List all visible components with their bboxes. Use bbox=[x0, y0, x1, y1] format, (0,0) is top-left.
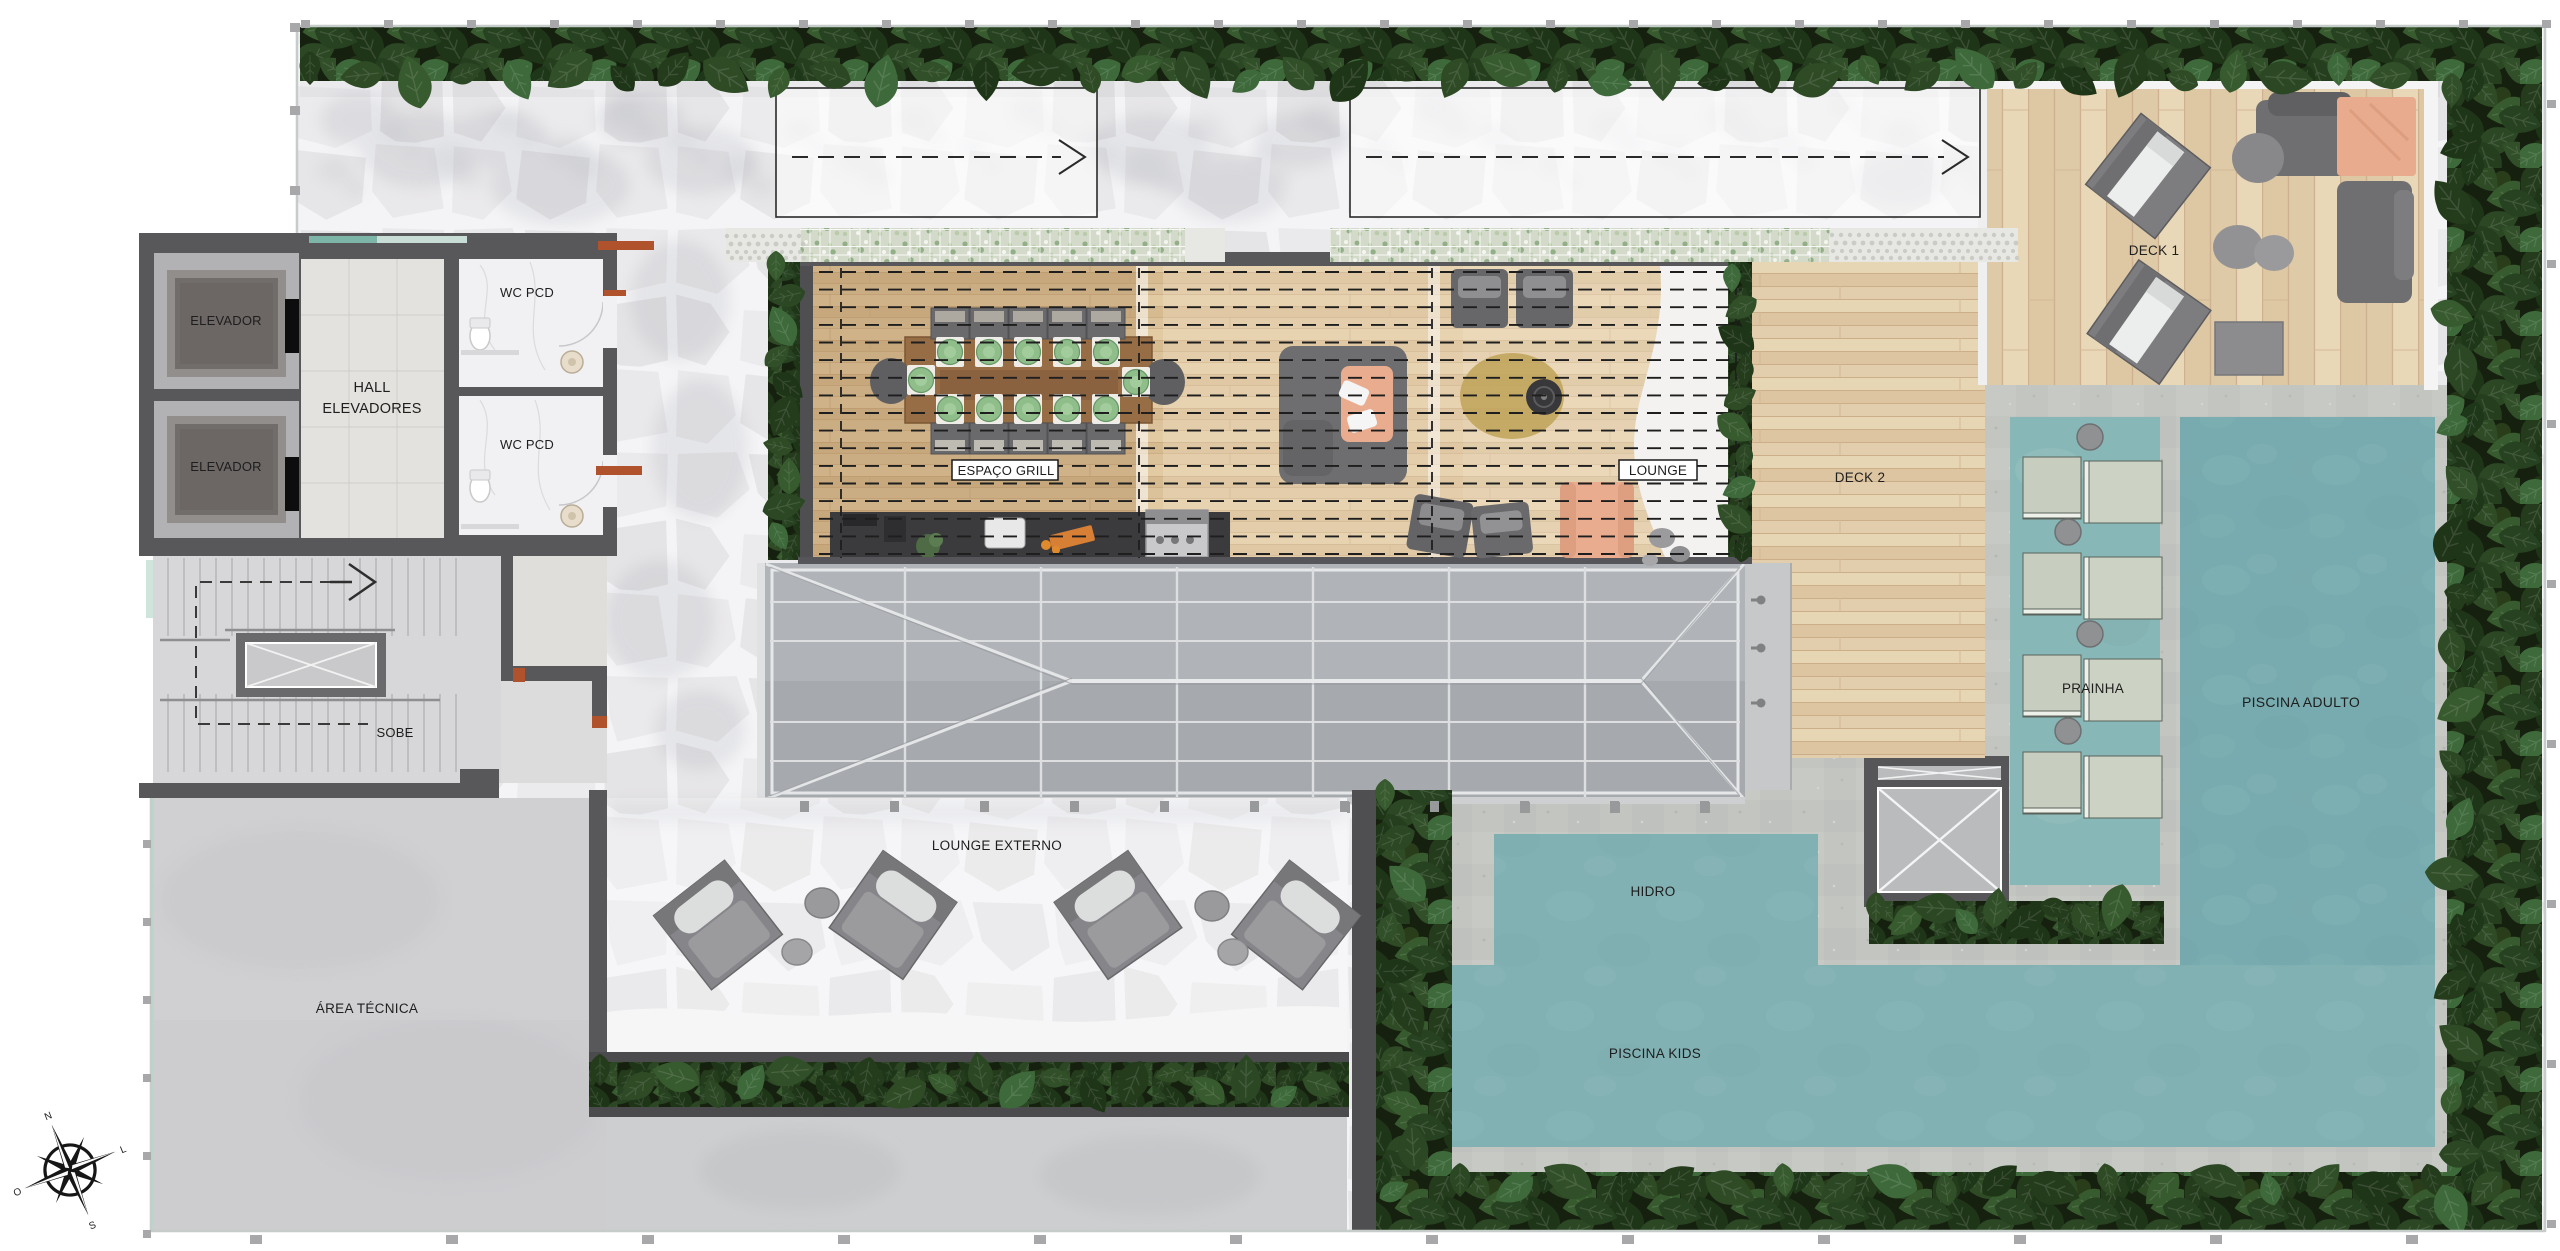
svg-text:WC PCD: WC PCD bbox=[500, 285, 554, 300]
svg-text:ÁREA TÉCNICA: ÁREA TÉCNICA bbox=[316, 1001, 418, 1016]
svg-text:WC PCD: WC PCD bbox=[500, 437, 554, 452]
svg-text:ELEVADOR: ELEVADOR bbox=[190, 313, 261, 328]
svg-text:LOUNGE EXTERNO: LOUNGE EXTERNO bbox=[932, 838, 1062, 853]
svg-text:HIDRO: HIDRO bbox=[1631, 884, 1676, 899]
svg-text:ELEVADORES: ELEVADORES bbox=[322, 401, 421, 417]
svg-text:PRAINHA: PRAINHA bbox=[2062, 681, 2124, 696]
svg-text:SOBE: SOBE bbox=[377, 725, 414, 740]
svg-text:ESPAÇO GRILL: ESPAÇO GRILL bbox=[958, 463, 1055, 478]
svg-text:ELEVADOR: ELEVADOR bbox=[190, 459, 261, 474]
svg-text:HALL: HALL bbox=[353, 380, 390, 396]
svg-text:PISCINA ADULTO: PISCINA ADULTO bbox=[2242, 694, 2360, 710]
svg-text:DECK 1: DECK 1 bbox=[2129, 243, 2180, 258]
svg-text:LOUNGE: LOUNGE bbox=[1629, 463, 1687, 478]
svg-text:PISCINA KIDS: PISCINA KIDS bbox=[1609, 1046, 1701, 1061]
svg-text:DECK 2: DECK 2 bbox=[1835, 470, 1886, 485]
